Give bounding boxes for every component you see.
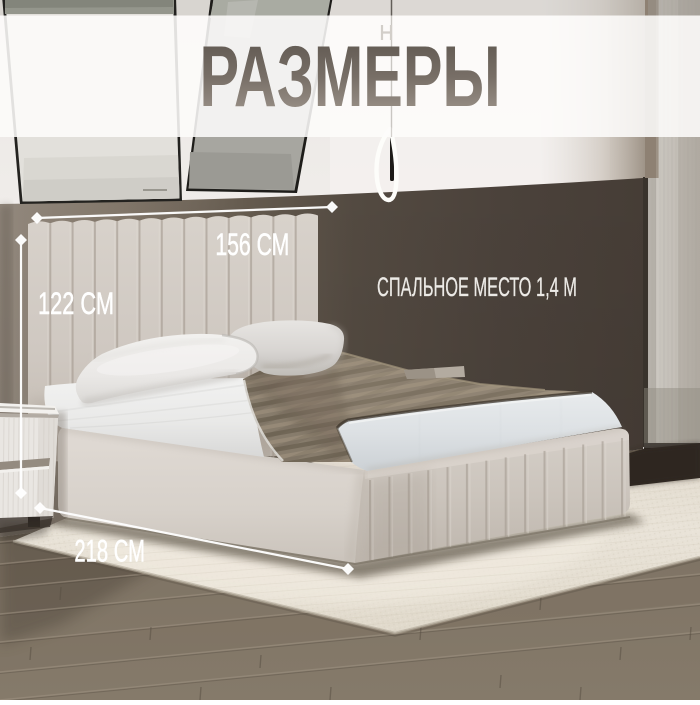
svg-text:156 СМ: 156 СМ xyxy=(215,227,289,262)
svg-text:218 СМ: 218 СМ xyxy=(74,533,145,569)
svg-text:СПАЛЬНОЕ МЕСТО 1,4 М: СПАЛЬНОЕ МЕСТО 1,4 М xyxy=(377,272,577,302)
svg-text:122 СМ: 122 СМ xyxy=(38,285,114,321)
svg-text:РАЗМЕРЫ: РАЗМЕРЫ xyxy=(199,28,500,125)
